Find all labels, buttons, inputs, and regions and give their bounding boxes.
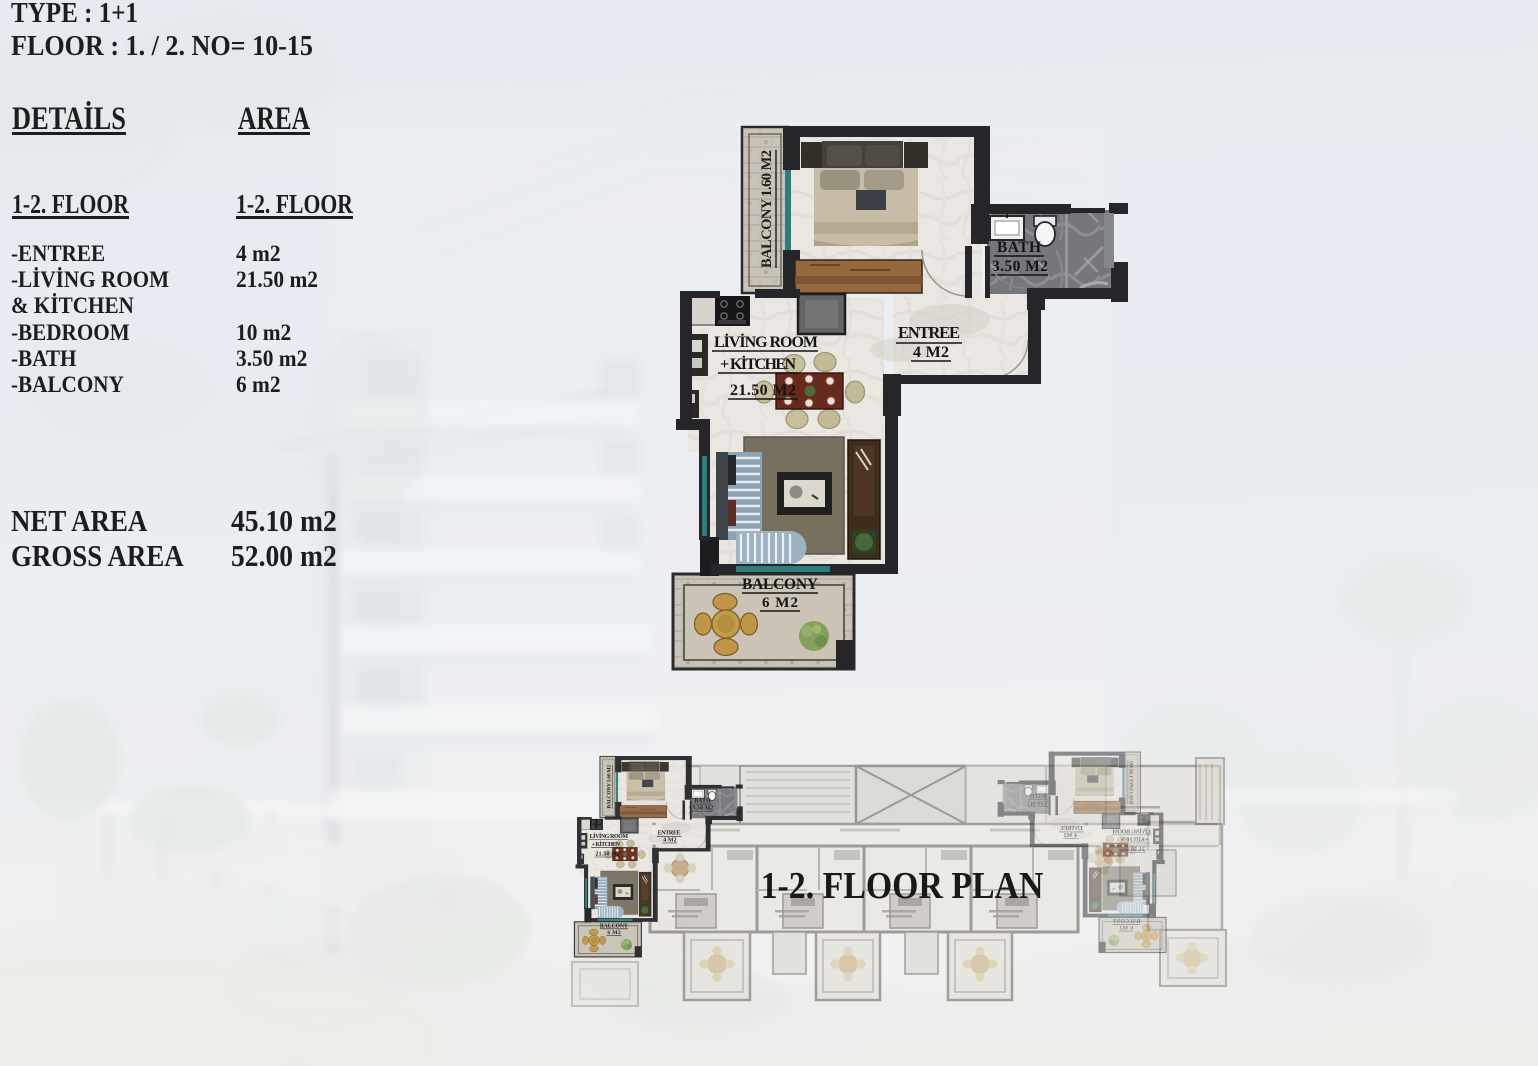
svg-text:21.50 M2: 21.50 M2 bbox=[730, 382, 796, 399]
svg-text:3.50 M2: 3.50 M2 bbox=[992, 258, 1048, 275]
svg-text:ENTREE: ENTREE bbox=[898, 323, 960, 342]
svg-text:4 M2: 4 M2 bbox=[913, 344, 949, 361]
svg-text:1-2. FLOOR PLAN: 1-2. FLOOR PLAN bbox=[761, 864, 1044, 906]
svg-text:+ KİTCHEN: + KİTCHEN bbox=[720, 354, 796, 373]
svg-text:BALCONY 1.60 M2: BALCONY 1.60 M2 bbox=[759, 150, 775, 268]
svg-text:LİVİNG ROOM: LİVİNG ROOM bbox=[714, 332, 818, 351]
svg-text:BALCONY: BALCONY bbox=[742, 576, 818, 593]
svg-text:BATH: BATH bbox=[997, 239, 1041, 256]
svg-text:6 M2: 6 M2 bbox=[762, 595, 798, 611]
